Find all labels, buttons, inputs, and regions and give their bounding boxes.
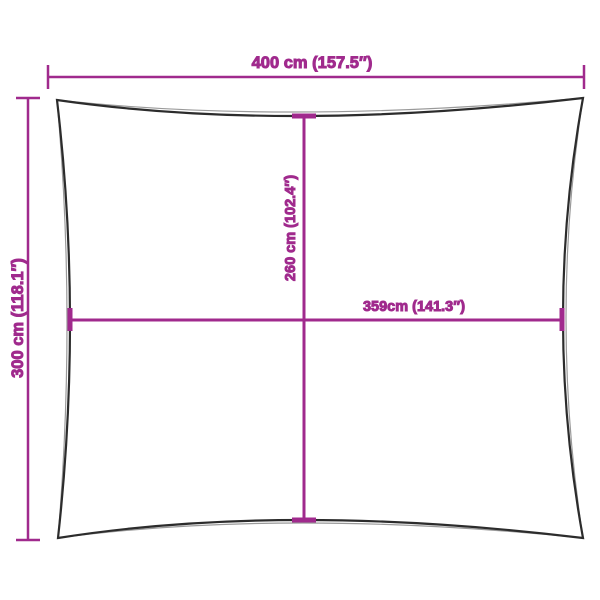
- sail-outline: [57, 98, 583, 538]
- dimension-top-width: 400 cm (157.5″): [48, 54, 584, 89]
- sail-outline-echo: [57, 98, 583, 538]
- left-height-label: 300 cm (118.1″): [9, 258, 27, 378]
- center-height-label: 260 cm (102.4″): [283, 175, 299, 281]
- top-width-label: 400 cm (157.5″): [252, 54, 373, 72]
- product-dimension-diagram: 400 cm (157.5″) 300 cm (118.1″) 260 cm (…: [0, 0, 600, 600]
- dimension-center-width: 359cm (141.3″): [70, 299, 562, 331]
- dimension-center-height: 260 cm (102.4″): [283, 116, 316, 520]
- dimension-diagram-canvas: 400 cm (157.5″) 300 cm (118.1″) 260 cm (…: [0, 0, 600, 600]
- center-width-label: 359cm (141.3″): [363, 299, 465, 315]
- dimension-left-height: 300 cm (118.1″): [9, 98, 40, 540]
- sail-shape: [57, 98, 583, 538]
